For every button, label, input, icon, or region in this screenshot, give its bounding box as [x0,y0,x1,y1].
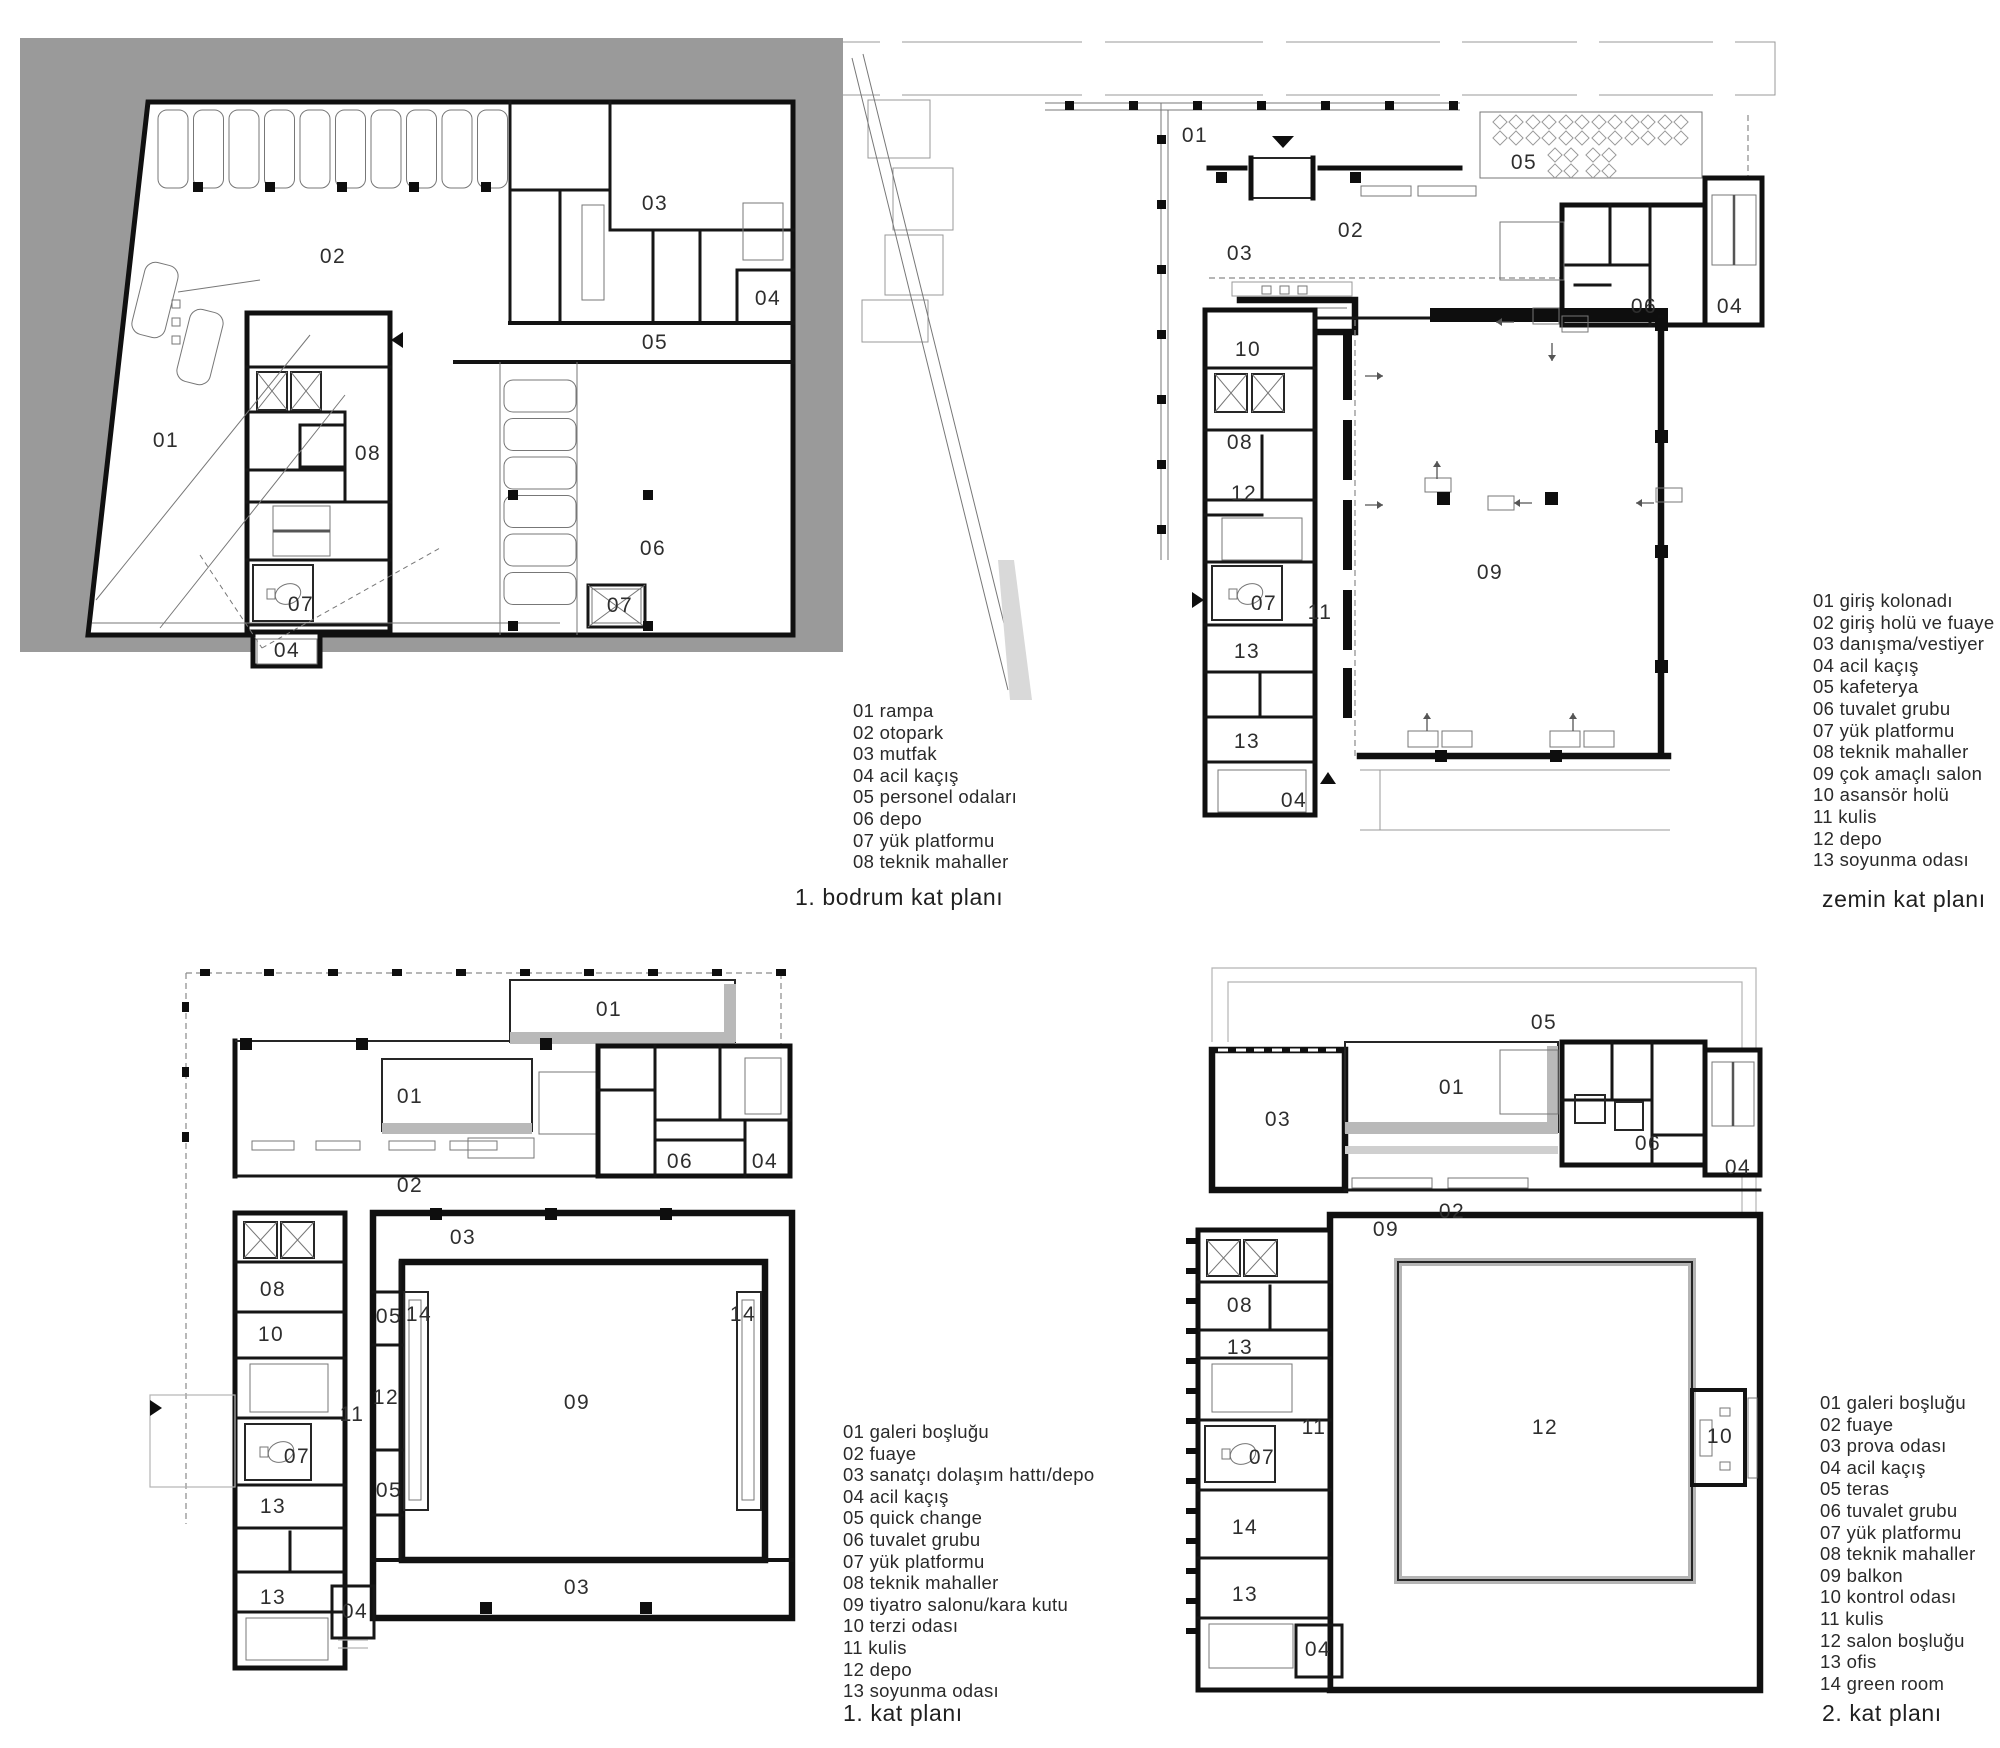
room-label-second-02: 02 [1439,1200,1465,1224]
room-label-first-05: 05 [376,1479,402,1503]
room-label-basement-06: 06 [640,537,666,561]
legend-item-10: 10 terzi odası [843,1615,1094,1637]
legend-item-03: 03 danışma/vestiyer [1813,633,1994,655]
room-label-ground-10: 10 [1235,338,1261,362]
room-label-first-04: 04 [752,1150,778,1174]
room-label-first-14: 14 [406,1303,432,1327]
legend-item-06: 06 depo [853,808,1017,830]
room-label-basement-07: 07 [607,594,633,618]
legend-item-08: 08 teknik mahaller [1813,741,1994,763]
room-label-basement-02: 02 [320,245,346,269]
room-label-ground-07: 07 [1251,592,1277,616]
legend-item-12: 12 salon boşluğu [1820,1630,1976,1652]
room-label-ground-08: 08 [1227,431,1253,455]
room-label-second-01: 01 [1439,1076,1465,1100]
room-label-second-10: 10 [1707,1425,1733,1449]
legend-item-09: 09 tiyatro salonu/kara kutu [843,1594,1094,1616]
legend-item-05: 05 kafeterya [1813,676,1994,698]
room-label-basement-04: 04 [755,287,781,311]
legend-item-01: 01 galeri boşluğu [1820,1392,1976,1414]
room-label-second-04: 04 [1305,1638,1331,1662]
room-label-second-09: 09 [1373,1218,1399,1242]
legend-item-07: 07 yük platformu [1813,720,1994,742]
legend-item-05: 05 teras [1820,1478,1976,1500]
legend-item-03: 03 sanatçı dolaşım hattı/depo [843,1464,1094,1486]
legend-item-03: 03 prova odası [1820,1435,1976,1457]
legend-item-06: 06 tuvalet grubu [843,1529,1094,1551]
room-label-first-12: 12 [373,1386,399,1410]
room-label-basement-01: 01 [153,429,179,453]
legend-item-08: 08 teknik mahaller [1820,1543,1976,1565]
room-label-ground-11: 11 [1308,601,1333,625]
legend-item-09: 09 çok amaçlı salon [1813,763,1994,785]
room-label-second-07: 07 [1249,1446,1275,1470]
room-label-second-04: 04 [1725,1156,1751,1180]
room-label-first-05: 05 [376,1305,402,1329]
legend-item-07: 07 yük platformu [1820,1522,1976,1544]
title-ground: zemin kat planı [1822,886,1986,913]
legend-item-10: 10 asansör holü [1813,784,1994,806]
legend-item-11: 11 kulis [1820,1608,1976,1630]
room-label-second-05: 05 [1531,1011,1557,1035]
room-label-ground-04: 04 [1717,295,1743,319]
legend-first: 01 galeri boşluğu02 fuaye03 sanatçı dola… [843,1421,1094,1702]
legend-item-13: 13 soyunma odası [1813,849,1994,871]
legend-item-04: 04 acil kaçış [843,1486,1094,1508]
legend-item-01: 01 galeri boşluğu [843,1421,1094,1443]
legend-item-04: 04 acil kaçış [853,765,1017,787]
room-label-second-13: 13 [1227,1336,1253,1360]
legend-item-14: 14 green room [1820,1673,1976,1695]
legend-item-07: 07 yük platformu [843,1551,1094,1573]
legend-ground: 01 giriş kolonadı02 giriş holü ve fuaye0… [1813,590,1994,871]
legend-item-02: 02 fuaye [1820,1414,1976,1436]
legend-item-06: 06 tuvalet grubu [1813,698,1994,720]
architectural-floor-plans-sheet: 0203040501080607070401050203060410081209… [0,0,2000,1748]
legend-second: 01 galeri boşluğu02 fuaye03 prova odası0… [1820,1392,1976,1694]
room-label-basement-05: 05 [642,331,668,355]
legend-item-07: 07 yük platformu [853,830,1017,852]
room-label-ground-13: 13 [1234,730,1260,754]
room-label-ground-02: 02 [1338,219,1364,243]
room-label-second-06: 06 [1635,1132,1661,1156]
room-label-ground-06: 06 [1631,295,1657,319]
room-label-basement-07: 07 [288,593,314,617]
title-basement: 1. bodrum kat planı [795,884,1003,911]
legend-item-04: 04 acil kaçış [1813,655,1994,677]
room-label-second-14: 14 [1232,1516,1258,1540]
room-label-basement-04: 04 [274,639,300,663]
legend-item-05: 05 personel odaları [853,786,1017,808]
room-label-ground-09: 09 [1477,561,1503,585]
room-label-first-11: 11 [340,1403,365,1427]
room-label-first-13: 13 [260,1586,286,1610]
room-label-first-13: 13 [260,1495,286,1519]
legend-item-12: 12 depo [1813,828,1994,850]
legend-item-01: 01 rampa [853,700,1017,722]
room-label-ground-05: 05 [1511,151,1537,175]
room-label-second-11: 11 [1302,1416,1327,1440]
legend-item-03: 03 mutfak [853,743,1017,765]
room-label-first-10: 10 [258,1323,284,1347]
room-label-first-09: 09 [564,1391,590,1415]
legend-item-05: 05 quick change [843,1507,1094,1529]
legend-item-02: 02 fuaye [843,1443,1094,1465]
legend-item-09: 09 balkon [1820,1565,1976,1587]
legend-item-04: 04 acil kaçış [1820,1457,1976,1479]
room-label-second-03: 03 [1265,1108,1291,1132]
room-label-second-08: 08 [1227,1294,1253,1318]
room-label-first-01: 01 [596,998,622,1022]
legend-item-01: 01 giriş kolonadı [1813,590,1994,612]
room-label-basement-03: 03 [642,192,668,216]
legend-item-13: 13 ofis [1820,1651,1976,1673]
legend-item-06: 06 tuvalet grubu [1820,1500,1976,1522]
room-label-first-06: 06 [667,1150,693,1174]
room-label-ground-01: 01 [1182,124,1208,148]
legend-item-08: 08 teknik mahaller [843,1572,1094,1594]
room-label-first-08: 08 [260,1278,286,1302]
room-label-ground-03: 03 [1227,242,1253,266]
title-first: 1. kat planı [843,1700,963,1727]
room-label-first-03: 03 [450,1226,476,1250]
legend-item-02: 02 otopark [853,722,1017,744]
room-label-first-02: 02 [397,1174,423,1198]
room-label-second-12: 12 [1532,1416,1558,1440]
room-label-ground-12: 12 [1231,482,1257,506]
legend-item-13: 13 soyunma odası [843,1680,1094,1702]
legend-item-08: 08 teknik mahaller [853,851,1017,873]
room-label-first-14: 14 [730,1303,756,1327]
title-second: 2. kat planı [1822,1700,1942,1727]
room-label-first-01: 01 [397,1085,423,1109]
legend-item-10: 10 kontrol odası [1820,1586,1976,1608]
legend-item-11: 11 kulis [843,1637,1094,1659]
legend-item-11: 11 kulis [1813,806,1994,828]
room-label-first-07: 07 [284,1445,310,1469]
legend-item-12: 12 depo [843,1659,1094,1681]
room-label-first-04: 04 [342,1600,368,1624]
room-label-ground-13: 13 [1234,640,1260,664]
legend-basement: 01 rampa02 otopark03 mutfak04 acil kaçış… [853,700,1017,873]
room-label-ground-04: 04 [1281,789,1307,813]
room-label-first-03: 03 [564,1576,590,1600]
room-label-second-13: 13 [1232,1583,1258,1607]
room-label-basement-08: 08 [355,442,381,466]
legend-item-02: 02 giriş holü ve fuaye [1813,612,1994,634]
